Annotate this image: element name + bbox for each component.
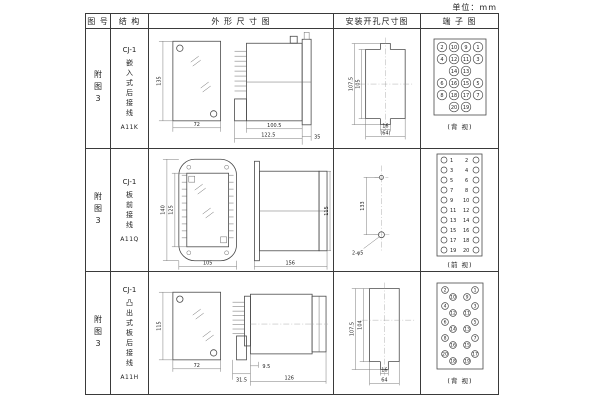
terminal-pin-number: 20 (463, 248, 469, 254)
dim-label: 104 (358, 320, 364, 329)
row1-terminal-cell: 2 10 9 1 4 12 11 3 14 13 6 16 15 5 8 18 … (421, 29, 498, 149)
terminal-pin-number: 16 (450, 343, 456, 349)
terminal-pin-number: 20 (442, 352, 448, 358)
row2-terminal-cell: 1 2 3 4 5 6 7 8 9 10 11 12 13 14 15 16 1… (421, 149, 498, 272)
dim-label: 72 (194, 363, 200, 369)
type-code: A11K (121, 124, 139, 131)
terminal-pin-number: 2 (440, 44, 443, 50)
spec-table: 图 号 结 构 外 形 尺 寸 图 安装开孔尺寸图 端 子 图 附图3 CJ-1… (85, 13, 499, 395)
outline-diagram-a11h: 115 72 9.5 31.5 126 (149, 272, 333, 394)
row3-figure-no: 附图3 (86, 272, 111, 394)
dim-label: 72 (194, 121, 200, 127)
terminal-pin-number: 18 (450, 359, 456, 365)
terminal-pin-number: 17 (463, 92, 469, 98)
dim-label: 64 (381, 377, 387, 383)
view-caption: (背 视) (447, 122, 472, 131)
terminal-pin-number: 7 (474, 336, 477, 342)
front-view: 115 72 (156, 292, 220, 372)
row3-terminal-cell: 2 4 6 8 20 10 12 14 16 18 9 11 13 15 19 … (421, 272, 498, 394)
terminal-pin-number: 10 (463, 198, 469, 204)
terminal-pin-number: 4 (440, 56, 443, 62)
dim-label: 9.5 (262, 364, 270, 370)
type-code: A11H (120, 374, 138, 381)
terminal-pins: 1 2 3 4 5 6 7 8 9 10 11 12 13 14 15 16 1… (441, 157, 479, 254)
terminal-pin-number: 3 (474, 304, 477, 310)
model-label: CJ-1 (123, 46, 137, 54)
dim-label: 105 (203, 260, 212, 266)
row2-install-cell: 133 2-φ5 (334, 149, 421, 272)
terminal-pin-number: 11 (450, 208, 456, 214)
dim-label: 115 (324, 206, 330, 215)
dim-label: 126 (284, 376, 293, 382)
unit-label: 单位：mm (452, 2, 497, 13)
terminal-pin-number: 17 (472, 352, 478, 358)
terminal-diagram-a11k: 2 10 9 1 4 12 11 3 14 13 6 16 15 5 8 18 … (421, 29, 498, 149)
side-view: 9.5 31.5 126 (233, 294, 328, 386)
type-code: A11Q (120, 236, 138, 243)
terminal-pin-number: 6 (444, 320, 447, 326)
dim-label: (64) (380, 130, 390, 136)
terminal-pin-number: 1 (450, 158, 453, 164)
terminal-pin-number: 11 (464, 311, 470, 317)
terminal-pin-number: 17 (450, 238, 456, 244)
terminal-pin-number: 6 (440, 80, 443, 86)
terminal-pin-number: 7 (450, 188, 453, 194)
header-terminal-diagram: 端 子 图 (421, 14, 498, 29)
terminal-pin-number: 8 (444, 336, 447, 342)
terminal-pin-number: 15 (450, 228, 456, 234)
terminal-pins: 2 4 6 8 20 10 12 14 16 18 9 11 13 15 19 … (442, 287, 479, 365)
row2-structure: CJ-1 板前接线 A11Q (111, 149, 149, 272)
model-label: CJ-1 (123, 178, 137, 186)
header-structure: 结 构 (111, 14, 149, 29)
outline-diagram-a11k: 135 72 100.5 122.5 35 (149, 29, 333, 149)
terminal-pin-number: 9 (464, 44, 467, 50)
terminal-pin-number: 1 (476, 44, 479, 50)
terminal-pin-number: 5 (474, 320, 477, 326)
row1-figure-no: 附图3 (86, 29, 111, 149)
header-install-holes: 安装开孔尺寸图 (334, 14, 421, 29)
figure-label: 附图3 (93, 192, 104, 229)
terminal-pin-number: 13 (463, 68, 469, 74)
terminal-pin-number: 10 (451, 44, 457, 50)
terminal-pin-number: 19 (450, 248, 456, 254)
row3-outline-cell: 115 72 9.5 31.5 126 (149, 272, 334, 394)
terminal-pin-number: 4 (444, 304, 447, 310)
header-outline-dims: 外 形 尺 寸 图 (149, 14, 334, 29)
terminal-pin-number: 19 (463, 104, 469, 110)
terminal-pin-number: 18 (463, 238, 469, 244)
terminal-diagram-a11q: 1 2 3 4 5 6 7 8 9 10 11 12 13 14 15 16 1… (421, 149, 498, 272)
dim-label: 140 (160, 205, 166, 214)
dim-label: 100.5 (267, 122, 281, 128)
outline-diagram-a11q: 140 125 105 156 115 (149, 149, 333, 272)
view-caption: (前 视) (447, 260, 472, 269)
dim-label: 31.5 (236, 378, 247, 384)
row3-install-cell: 107.5 104 16 64 (334, 272, 421, 394)
dim-label: 115 (156, 321, 162, 330)
terminal-pin-number: 10 (450, 295, 456, 301)
dim-label: 35 (314, 134, 320, 140)
structure-desc: 板前接线 (125, 191, 135, 231)
terminal-pin-number: 4 (465, 168, 468, 174)
terminal-diagram-a11h: 2 4 6 8 20 10 12 14 16 18 9 11 13 15 19 … (421, 272, 498, 394)
row1-install-cell: 107.5 105 16 (64) (334, 29, 421, 149)
view-caption: (背 视) (447, 376, 472, 385)
terminal-pin-number: 2 (444, 288, 447, 294)
install-hole-diagram-a11k: 107.5 105 16 (64) (334, 29, 420, 149)
terminal-pin-number: 1 (474, 288, 477, 294)
terminal-pins: 2 10 9 1 4 12 11 3 14 13 6 16 15 5 8 18 … (437, 42, 483, 112)
side-view: 100.5 122.5 35 (235, 32, 321, 144)
terminal-pin-number: 8 (465, 188, 468, 194)
terminal-pin-number: 19 (464, 359, 470, 365)
terminal-pin-number: 9 (466, 295, 469, 301)
figure-label: 附图3 (93, 70, 104, 107)
terminal-pin-number: 2 (465, 158, 468, 164)
terminal-pin-number: 14 (463, 218, 469, 224)
front-view: 140 125 105 (160, 159, 236, 269)
terminal-pin-number: 5 (476, 80, 479, 86)
dim-label: 156 (285, 260, 294, 266)
terminal-pin-number: 12 (463, 208, 469, 214)
front-view: 135 72 (156, 41, 220, 132)
terminal-pin-number: 16 (463, 228, 469, 234)
dim-label: 135 (156, 76, 162, 85)
figure-label: 附图3 (93, 315, 104, 352)
terminal-pin-number: 13 (464, 327, 470, 333)
hole-spec-label: 2-φ5 (352, 250, 363, 256)
dim-label: 107.5 (349, 322, 355, 336)
row2-outline-cell: 140 125 105 156 115 (149, 149, 334, 272)
side-view: 156 115 (254, 161, 331, 269)
dim-label: 107.5 (348, 76, 354, 90)
terminal-pin-number: 6 (465, 178, 468, 184)
dim-label: 125 (168, 205, 174, 214)
dim-label: 16 (382, 123, 388, 129)
structure-desc: 凸出式板后接线 (125, 299, 135, 369)
install-hole-diagram-a11q: 133 2-φ5 (334, 149, 420, 272)
row3-structure: CJ-1 凸出式板后接线 A11H (111, 272, 149, 394)
install-hole-diagram-a11h: 107.5 104 16 64 (334, 272, 420, 394)
structure-desc: 嵌入式后接线 (125, 59, 135, 119)
terminal-pin-number: 11 (463, 56, 469, 62)
dim-label: 16 (381, 368, 387, 374)
terminal-pin-number: 16 (451, 80, 457, 86)
row1-outline-cell: 135 72 100.5 122.5 35 (149, 29, 334, 149)
row1-structure: CJ-1 嵌入式后接线 A11K (111, 29, 149, 149)
header-figure-no: 图 号 (86, 14, 111, 29)
model-label: CJ-1 (123, 286, 137, 294)
terminal-pin-number: 3 (450, 168, 453, 174)
terminal-pin-number: 13 (450, 218, 456, 224)
dim-label: 133 (360, 201, 366, 210)
dim-label: 105 (356, 79, 362, 88)
row2-figure-no: 附图3 (86, 149, 111, 272)
terminal-pin-number: 9 (450, 198, 453, 204)
terminal-pin-number: 5 (450, 178, 453, 184)
terminal-pin-number: 14 (451, 68, 457, 74)
terminal-pin-number: 12 (451, 56, 457, 62)
terminal-pin-number: 12 (450, 311, 456, 317)
terminal-pin-number: 20 (451, 104, 457, 110)
terminal-pin-number: 14 (450, 327, 456, 333)
terminal-pin-number: 8 (440, 92, 443, 98)
terminal-pin-number: 15 (464, 343, 470, 349)
terminal-pin-number: 15 (463, 80, 469, 86)
terminal-pin-number: 7 (476, 92, 479, 98)
terminal-pin-number: 3 (476, 56, 479, 62)
dim-label: 122.5 (261, 132, 275, 138)
terminal-pin-number: 18 (451, 92, 457, 98)
